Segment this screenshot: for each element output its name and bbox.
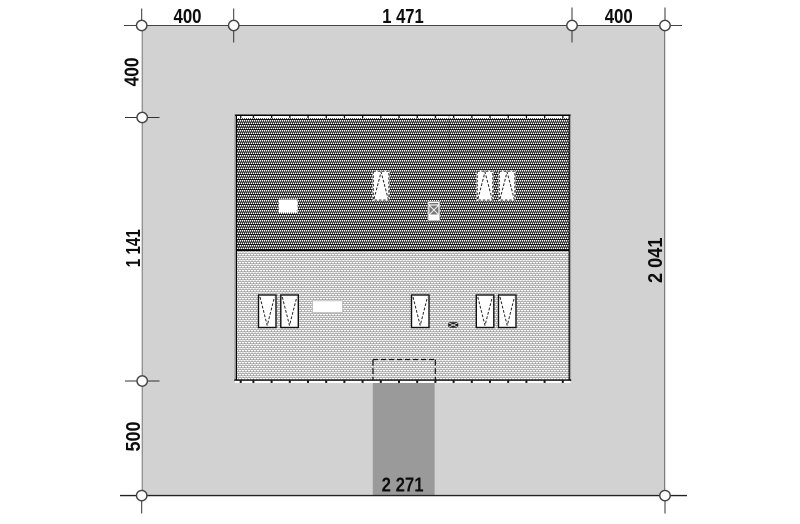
svg-text:500: 500 [123,422,145,452]
svg-text:400: 400 [122,57,144,86]
svg-text:2 041: 2 041 [645,238,667,284]
svg-text:400: 400 [174,6,202,28]
svg-text:1 471: 1 471 [382,6,424,28]
svg-text:2 271: 2 271 [382,475,424,497]
svg-text:1 141: 1 141 [123,229,145,267]
svg-text:400: 400 [605,6,633,28]
